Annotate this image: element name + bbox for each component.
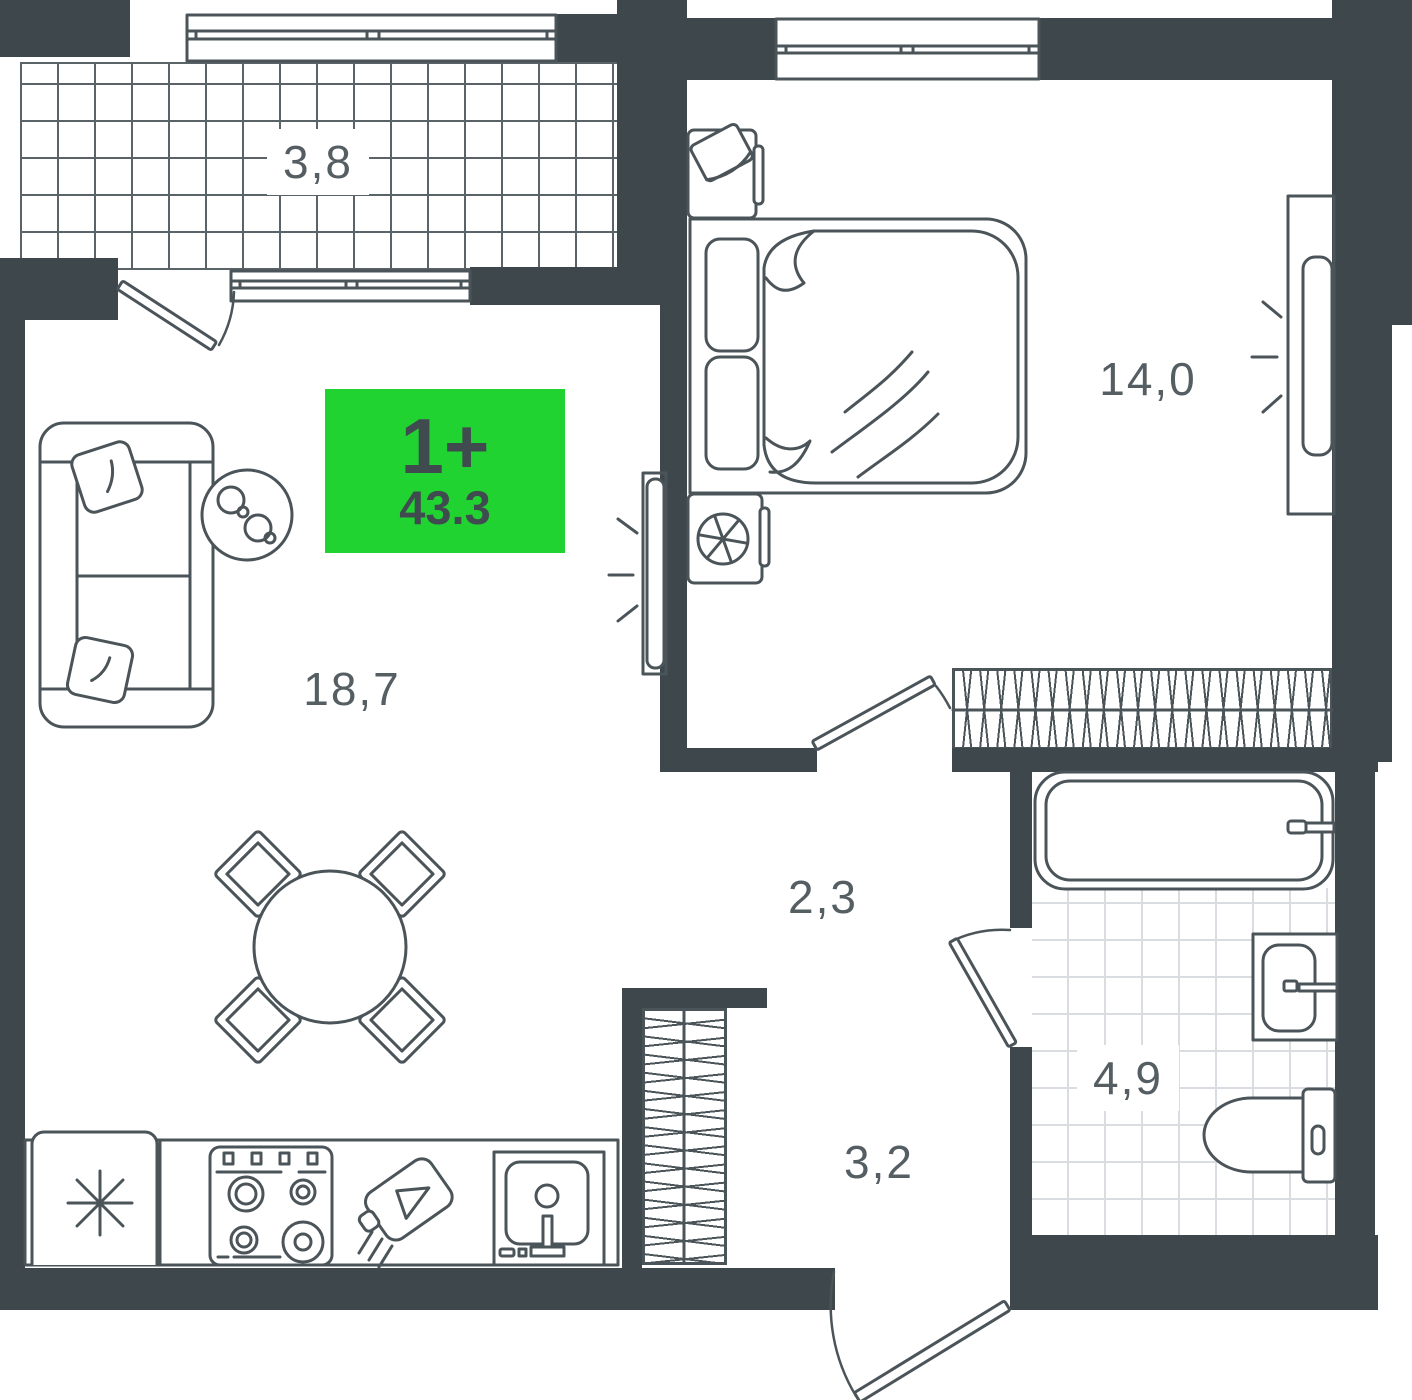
bedroom-door bbox=[812, 676, 950, 750]
bathroom-door bbox=[949, 930, 1016, 1047]
coffee-table bbox=[202, 470, 292, 560]
dining-set bbox=[214, 830, 446, 1064]
bathtub bbox=[1035, 772, 1334, 889]
balcony-door bbox=[117, 281, 234, 350]
room-label-living: 18,7 bbox=[303, 662, 401, 716]
apartment-type-label: 1+ bbox=[401, 411, 490, 481]
fridge-icon bbox=[32, 1132, 157, 1265]
room-label-hallway: 2,3 bbox=[788, 870, 858, 924]
furniture-layer bbox=[0, 0, 1412, 1400]
bedroom-window bbox=[776, 19, 1039, 79]
living-window bbox=[231, 271, 470, 301]
stove-icon bbox=[210, 1147, 332, 1265]
nightstand-top bbox=[688, 123, 763, 218]
floor-plan: 3,8 18,7 14,0 2,3 3,2 4,9 1+ 43.3 bbox=[0, 0, 1412, 1400]
room-label-bathroom: 4,9 bbox=[1077, 1045, 1179, 1111]
bed bbox=[690, 219, 1026, 493]
tv-living-icon bbox=[609, 473, 666, 674]
toilet bbox=[1204, 1089, 1335, 1182]
apartment-badge: 1+ 43.3 bbox=[325, 389, 565, 553]
sofa bbox=[40, 423, 213, 727]
entrance-door bbox=[831, 1272, 1010, 1400]
room-label-balcony: 3,8 bbox=[267, 129, 369, 195]
room-label-bedroom: 14,0 bbox=[1099, 352, 1197, 406]
cutting-board-icon bbox=[349, 1154, 456, 1267]
balcony-window bbox=[187, 15, 556, 61]
kitchen-sink-icon bbox=[494, 1152, 604, 1265]
tv-bedroom-icon bbox=[1252, 196, 1334, 514]
apartment-area-label: 43.3 bbox=[399, 484, 490, 531]
bathroom-sink bbox=[1253, 934, 1337, 1040]
nightstand-bottom bbox=[688, 494, 769, 583]
room-label-entry: 3,2 bbox=[844, 1135, 914, 1189]
